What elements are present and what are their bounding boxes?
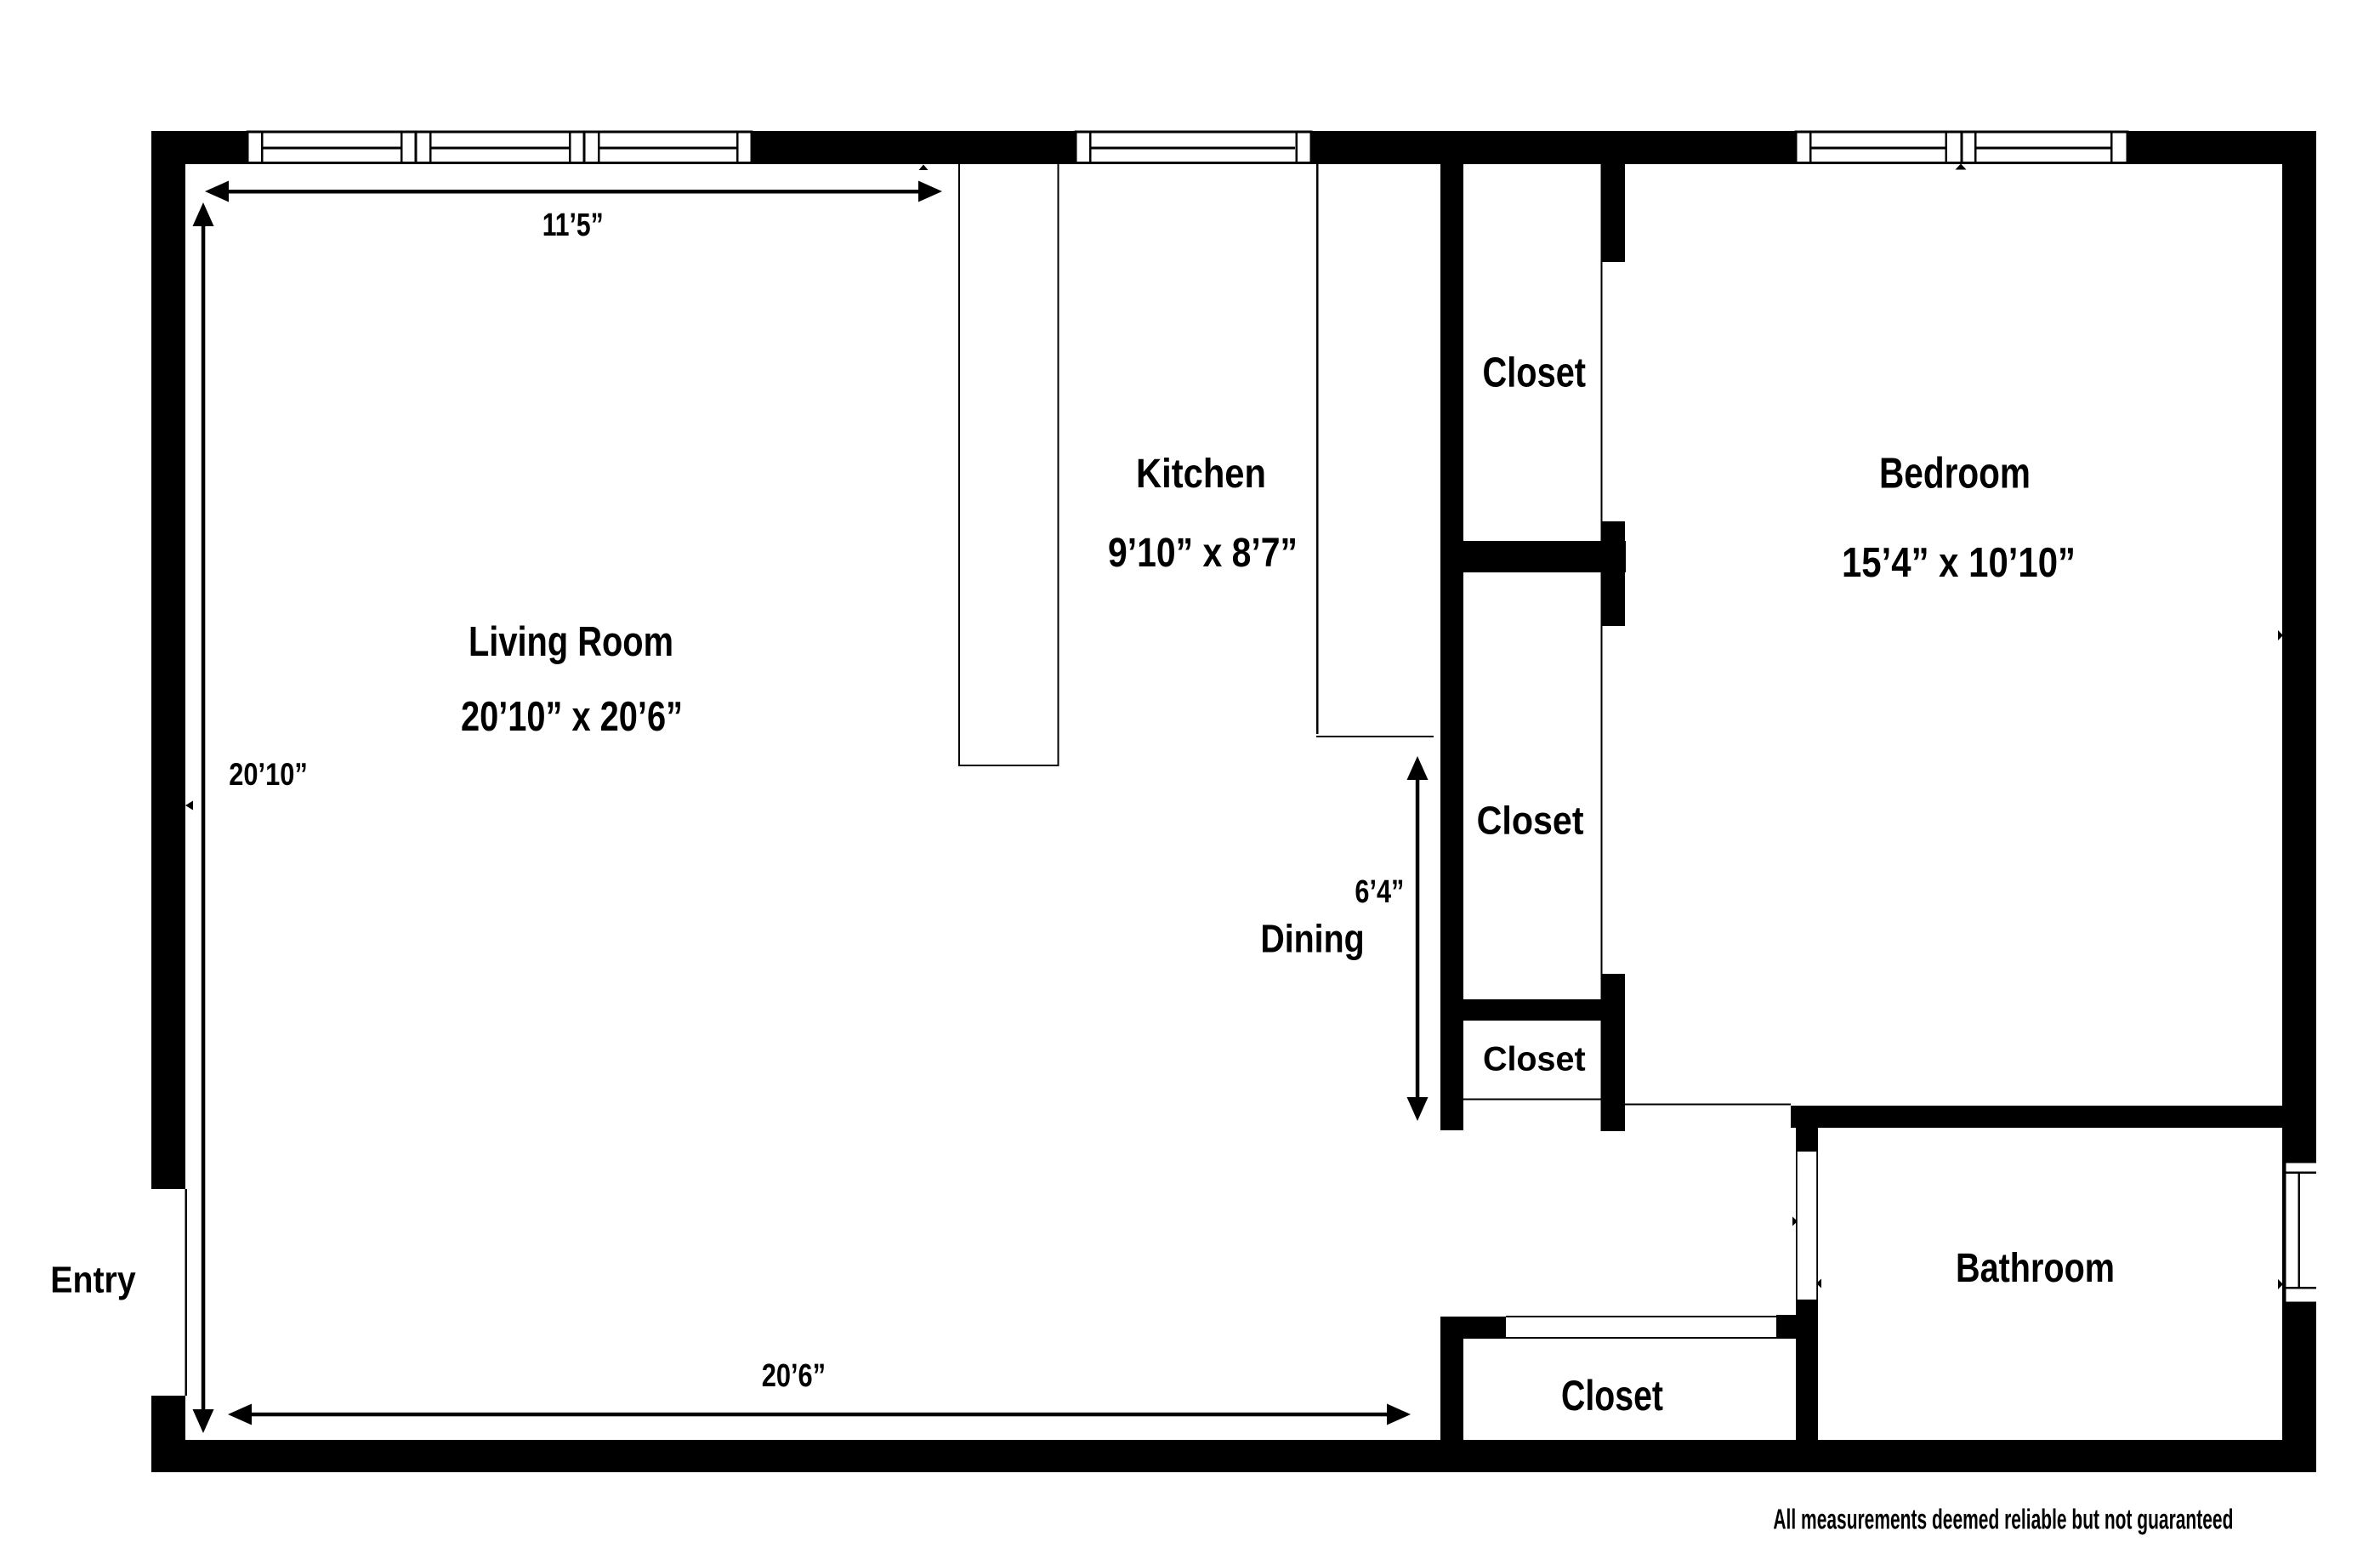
svg-text:Closet: Closet — [1561, 1372, 1663, 1419]
svg-text:Living Room: Living Room — [469, 619, 673, 665]
svg-text:20’10”: 20’10” — [229, 757, 308, 792]
svg-text:9’10” x 8’7”: 9’10” x 8’7” — [1108, 531, 1298, 576]
svg-text:11’5”: 11’5” — [542, 208, 604, 243]
svg-text:Kitchen: Kitchen — [1136, 452, 1266, 497]
svg-text:Closet: Closet — [1483, 1041, 1586, 1078]
svg-text:15’4” x 10’10”: 15’4” x 10’10” — [1842, 540, 2076, 586]
svg-text:Entry: Entry — [50, 1260, 136, 1301]
svg-text:20’10” x 20’6”: 20’10” x 20’6” — [461, 694, 683, 740]
svg-text:Bedroom: Bedroom — [1879, 449, 2031, 498]
svg-text:6’4”: 6’4” — [1355, 874, 1404, 910]
svg-text:Bathroom: Bathroom — [1956, 1246, 2115, 1291]
svg-text:Dining: Dining — [1260, 916, 1364, 960]
svg-text:20’6”: 20’6” — [762, 1358, 826, 1394]
svg-text:Closet: Closet — [1483, 350, 1587, 395]
svg-text:All measurements deemed reliab: All measurements deemed reliable but not… — [1773, 1503, 2233, 1534]
svg-text:Closet: Closet — [1477, 799, 1584, 843]
